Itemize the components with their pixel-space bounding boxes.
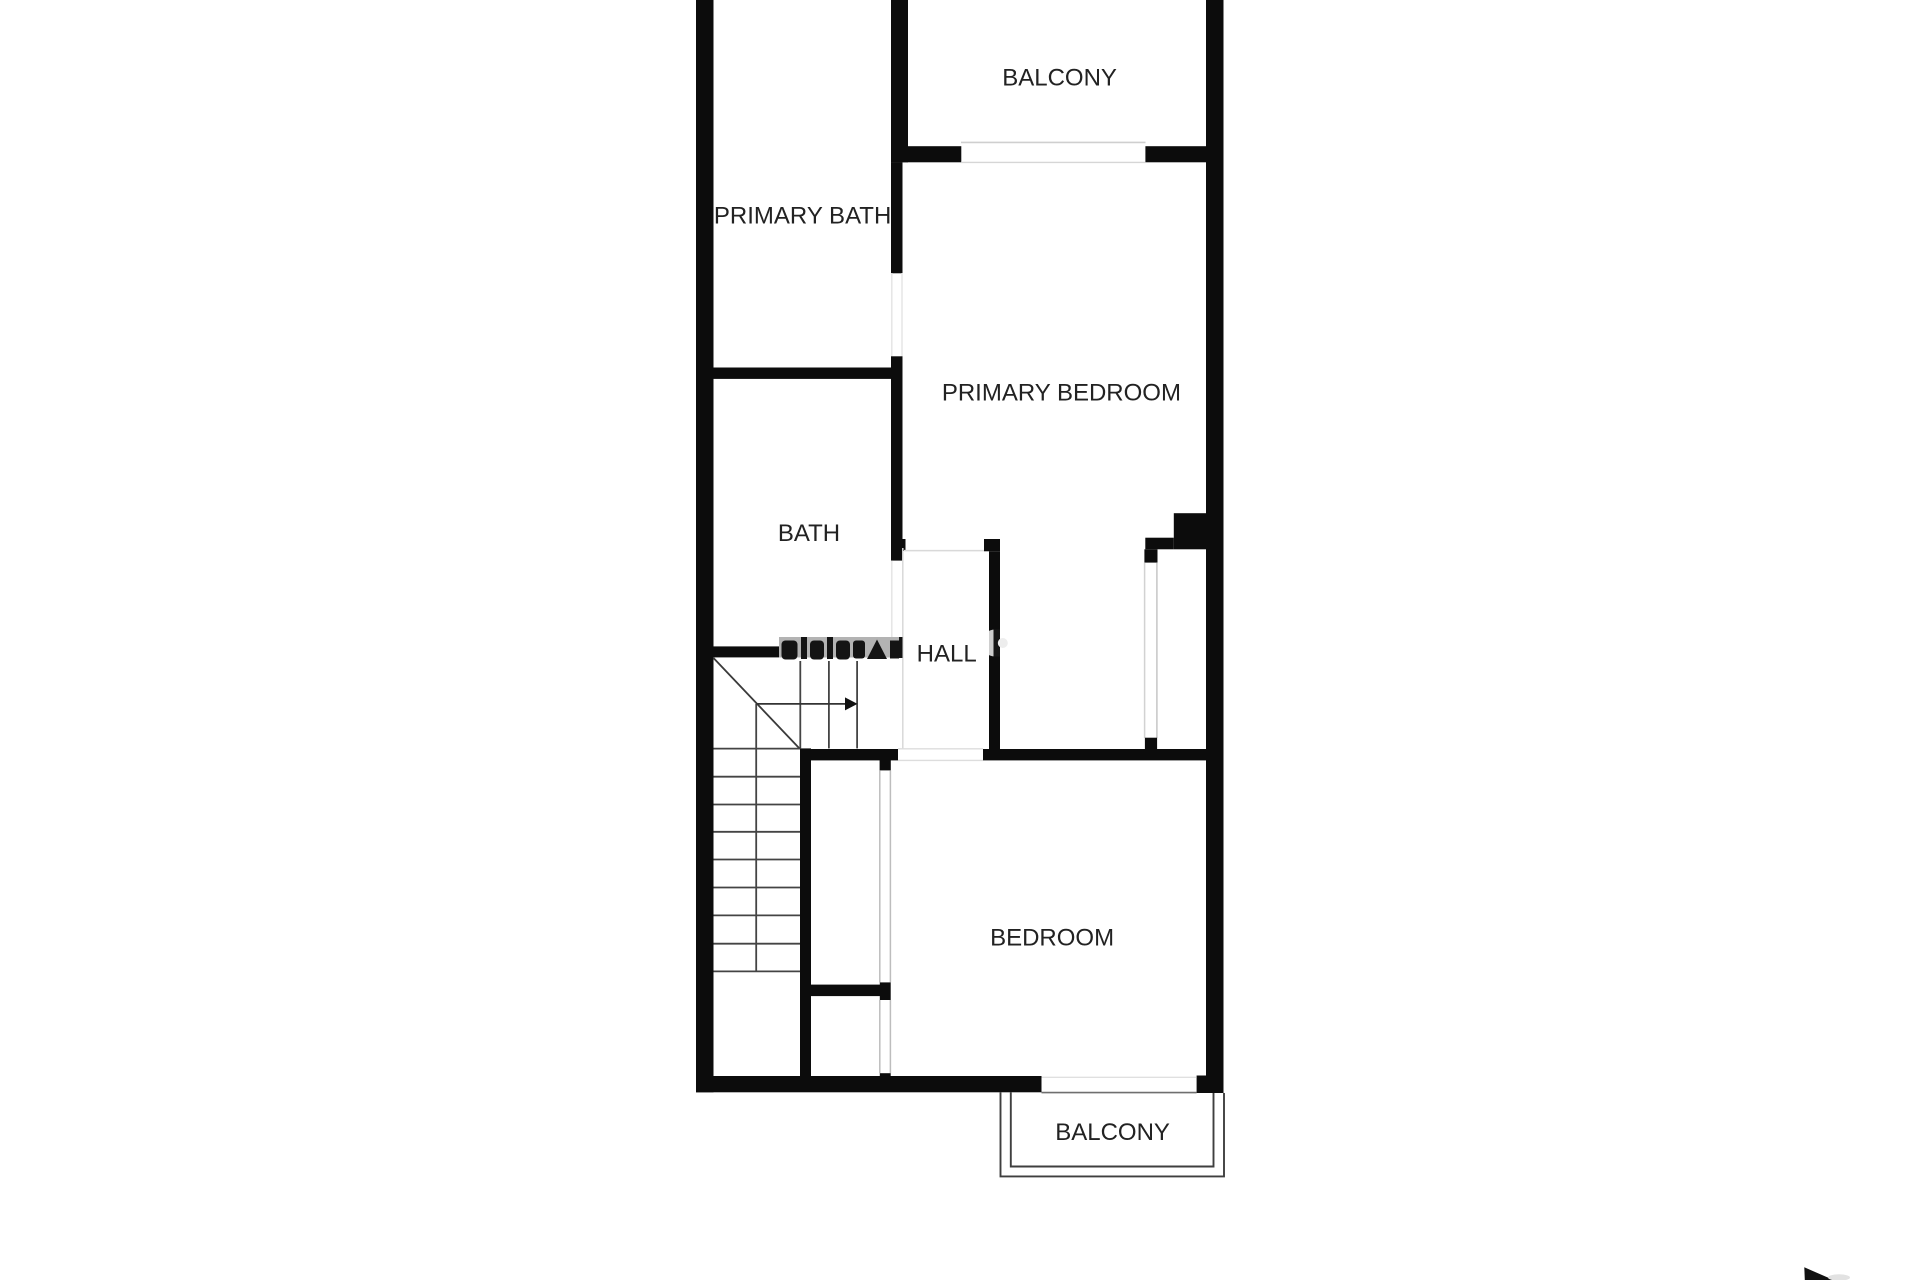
svg-text:PRIMARY BATH: PRIMARY BATH — [714, 202, 891, 229]
svg-text:BALCONY: BALCONY — [1002, 65, 1117, 92]
svg-text:PRIMARY BEDROOM: PRIMARY BEDROOM — [942, 380, 1181, 407]
svg-text:BATH: BATH — [778, 520, 840, 547]
svg-text:BALCONY: BALCONY — [1055, 1119, 1170, 1146]
svg-text:BEDROOM: BEDROOM — [990, 925, 1114, 952]
svg-text:HALL: HALL — [917, 641, 977, 668]
